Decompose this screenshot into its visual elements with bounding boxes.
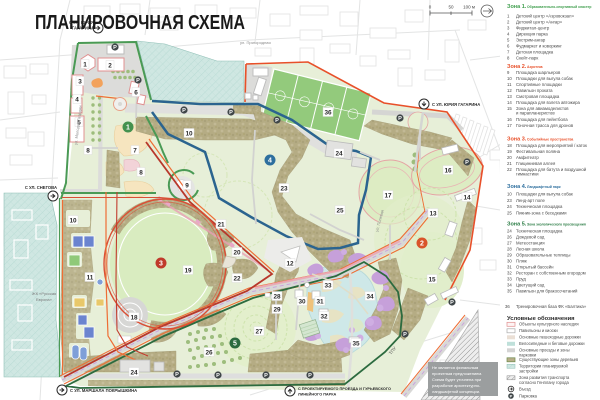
svg-text:Гоночная трасса для дронов: Гоночная трасса для дронов — [516, 123, 574, 128]
svg-text:20: 20 — [233, 249, 241, 256]
svg-text:P: P — [264, 373, 268, 379]
svg-text:P: P — [182, 108, 186, 114]
svg-text:Аэротека: Аэротека — [527, 65, 543, 69]
svg-text:2: 2 — [108, 62, 112, 69]
svg-text:4: 4 — [268, 158, 272, 165]
svg-text:17: 17 — [384, 192, 392, 199]
svg-text:26: 26 — [205, 349, 213, 356]
svg-text:5: 5 — [233, 341, 237, 348]
svg-text:Павильон проката: Павильон проката — [516, 88, 553, 93]
svg-text:16: 16 — [507, 117, 512, 122]
svg-text:29: 29 — [273, 306, 281, 313]
svg-text:P: P — [398, 116, 402, 122]
svg-text:Спортивные площадки: Спортивные площадки — [516, 82, 562, 87]
svg-text:P: P — [229, 110, 233, 116]
svg-text:19: 19 — [507, 149, 512, 154]
svg-text:25: 25 — [507, 210, 512, 215]
svg-text:P: P — [308, 373, 312, 379]
svg-text:17: 17 — [507, 123, 512, 128]
svg-text:ландшафтной концепции.: ландшафтной концепции. — [432, 389, 480, 394]
svg-text:19: 19 — [184, 267, 192, 274]
svg-text:Пикник-зона с беседками: Пикник-зона с беседками — [516, 210, 567, 215]
svg-text:Фиджитал-центр: Фиджитал-центр — [516, 26, 550, 31]
svg-text:15: 15 — [507, 106, 512, 111]
svg-text:Зона 1.: Зона 1. — [507, 4, 527, 10]
svg-text:3: 3 — [78, 78, 82, 85]
svg-text:34: 34 — [507, 283, 512, 288]
svg-text:36: 36 — [505, 304, 510, 309]
svg-text:Амфитеатр: Амфитеатр — [516, 155, 539, 160]
svg-text:Образовательно-спортивный клас: Образовательно-спортивный кластер — [527, 5, 591, 9]
svg-text:24: 24 — [507, 229, 512, 234]
svg-text:7: 7 — [133, 147, 137, 154]
svg-text:28: 28 — [507, 247, 512, 252]
svg-text:15: 15 — [428, 276, 436, 283]
svg-text:4: 4 — [75, 96, 79, 103]
svg-text:ЖК «Русская: ЖК «Русская — [32, 291, 56, 296]
svg-text:35: 35 — [352, 340, 360, 347]
svg-text:31: 31 — [507, 265, 512, 270]
svg-text:Площадка для мероприятий / кат: Площадка для мероприятий / каток — [516, 143, 587, 148]
svg-text:P: P — [465, 160, 469, 166]
svg-text:Детский центр «Ангар»: Детский центр «Ангар» — [516, 20, 563, 25]
svg-text:11: 11 — [87, 274, 94, 281]
svg-text:13: 13 — [507, 94, 512, 99]
svg-text:Событийные пространства: Событийные пространства — [527, 138, 573, 142]
svg-text:29: 29 — [507, 253, 512, 258]
svg-text:22: 22 — [233, 275, 241, 282]
svg-text:проектным предложением.: проектным предложением. — [432, 371, 482, 376]
svg-text:P: P — [113, 45, 117, 51]
svg-text:Павильоны и киоски: Павильоны и киоски — [519, 328, 558, 333]
svg-text:Площадки для выгула собак: Площадки для выгула собак — [516, 76, 573, 81]
svg-text:Тренировочная база ФК «Балтика: Тренировочная база ФК «Балтика» — [516, 304, 587, 309]
svg-text:Ленд-арт поле: Ленд-арт поле — [516, 198, 545, 203]
svg-text:14: 14 — [507, 100, 512, 105]
svg-text:24: 24 — [507, 204, 512, 209]
svg-text:Основные пешеходные дорожки: Основные пешеходные дорожки — [519, 335, 581, 340]
svg-text:Лесная школа: Лесная школа — [516, 247, 545, 252]
svg-text:Фудмаркет и коворкинг: Фудмаркет и коворкинг — [516, 44, 562, 49]
svg-text:10: 10 — [69, 217, 77, 224]
svg-text:Площадка для пейнтбола: Площадка для пейнтбола — [516, 117, 568, 122]
svg-text:Зона 4.: Зона 4. — [507, 184, 527, 190]
svg-text:P: P — [275, 118, 279, 124]
svg-text:Смотровая площадка: Смотровая площадка — [516, 94, 560, 99]
svg-text:21: 21 — [507, 161, 512, 166]
svg-text:14: 14 — [463, 194, 471, 201]
svg-text:10: 10 — [185, 130, 193, 137]
svg-text:20: 20 — [507, 155, 512, 160]
svg-text:Техническая площадка: Техническая площадка — [516, 204, 563, 209]
svg-text:10: 10 — [507, 76, 512, 81]
svg-text:Фестивальная поляна: Фестивальная поляна — [516, 149, 561, 154]
svg-text:23: 23 — [280, 185, 288, 192]
svg-text:Парковка: Парковка — [519, 394, 538, 399]
svg-text:16: 16 — [444, 167, 452, 174]
svg-text:27: 27 — [507, 241, 512, 246]
svg-text:Детский центр «Аэровокзал»: Детский центр «Аэровокзал» — [516, 14, 575, 19]
svg-text:С УЛ. СНЕГОВА: С УЛ. СНЕГОВА — [25, 185, 57, 190]
svg-text:Пляж: Пляж — [516, 259, 527, 264]
svg-text:35: 35 — [507, 289, 512, 294]
svg-text:22: 22 — [507, 167, 512, 172]
svg-text:36: 36 — [324, 109, 332, 116]
svg-text:9: 9 — [185, 182, 189, 189]
svg-text:Метеостанция: Метеостанция — [516, 241, 545, 246]
svg-text:50: 50 — [448, 5, 454, 10]
svg-text:ЛИНЕЙНОГО ПАРКА: ЛИНЕЙНОГО ПАРКА — [298, 393, 337, 397]
svg-text:Детская площадка: Детская площадка — [516, 50, 554, 55]
svg-text:P: P — [450, 300, 454, 306]
svg-text:ПЛАНИРОВОЧНАЯ СХЕМА: ПЛАНИРОВОЧНАЯ СХЕМА — [35, 12, 245, 34]
svg-text:P: P — [403, 332, 407, 338]
svg-text:31: 31 — [316, 298, 324, 305]
svg-text:Глициниевая аллея: Глициниевая аллея — [516, 161, 556, 166]
svg-text:ул. Пригородная: ул. Пригородная — [240, 40, 271, 45]
svg-text:Въезд: Въезд — [519, 387, 531, 392]
svg-text:34: 34 — [366, 293, 374, 300]
svg-text:26: 26 — [507, 235, 512, 240]
svg-text:Открытый бассейн: Открытый бассейн — [516, 265, 554, 270]
svg-text:18: 18 — [507, 143, 512, 148]
svg-text:P: P — [216, 373, 220, 379]
svg-text:P: P — [136, 78, 140, 84]
svg-text:Площадки для выгула собак: Площадки для выгула собак — [516, 192, 573, 197]
svg-text:Велосипедные и беговые дорожки: Велосипедные и беговые дорожки — [519, 341, 585, 346]
svg-text:Павильон для бракосочетаний: Павильон для бракосочетаний — [516, 289, 578, 294]
svg-text:8: 8 — [86, 147, 90, 154]
svg-text:С УЛ. ЮРИЯ ГАГАРИНА: С УЛ. ЮРИЯ ГАГАРИНА — [432, 102, 480, 107]
svg-text:Зона 3.: Зона 3. — [507, 137, 527, 143]
svg-text:Скейт-парк: Скейт-парк — [516, 56, 538, 61]
svg-text:8: 8 — [139, 169, 143, 176]
svg-text:разработке архитектурно-: разработке архитектурно- — [432, 383, 481, 388]
svg-text:С ПРОЕКТИРУЕМОГО ПРОЕЗДА И ГУР: С ПРОЕКТИРУЕМОГО ПРОЕЗДА И ГУРЬЕВСКОГО — [298, 387, 391, 391]
svg-text:Европа»: Европа» — [36, 297, 53, 302]
svg-text:27: 27 — [255, 328, 263, 335]
svg-text:P: P — [175, 372, 179, 378]
svg-text:33: 33 — [507, 277, 512, 282]
svg-text:Существующие зоны деревьев: Существующие зоны деревьев — [519, 357, 578, 362]
svg-text:Образовательные теплицы: Образовательные теплицы — [516, 253, 570, 258]
svg-text:Техническая площадка: Техническая площадка — [516, 229, 563, 234]
svg-text:6: 6 — [134, 89, 138, 96]
svg-text:33: 33 — [324, 282, 332, 289]
svg-text:С УЛ. МАРШАЛА ПОКРЫШКИНА: С УЛ. МАРШАЛА ПОКРЫШКИНА — [70, 388, 137, 393]
svg-text:100 м: 100 м — [463, 5, 475, 10]
svg-text:согласно Генплану города: согласно Генплану города — [519, 380, 569, 385]
svg-text:10: 10 — [507, 192, 512, 197]
svg-text:Экстрим-ангар: Экстрим-ангар — [516, 38, 546, 43]
svg-text:1: 1 — [83, 61, 87, 68]
svg-text:30: 30 — [298, 298, 306, 305]
svg-text:гимнастики: гимнастики — [516, 172, 539, 177]
svg-text:32: 32 — [507, 271, 512, 276]
svg-text:Пруд: Пруд — [516, 277, 526, 282]
svg-text:18: 18 — [130, 314, 138, 321]
svg-text:Зона 5.: Зона 5. — [507, 222, 527, 228]
svg-text:12: 12 — [507, 88, 512, 93]
svg-text:28: 28 — [273, 293, 281, 300]
svg-text:застройки: застройки — [519, 369, 538, 374]
svg-text:24: 24 — [335, 150, 343, 157]
svg-text:Площадка для взлета автожира: Площадка для взлета автожира — [516, 100, 580, 105]
svg-text:Ландшафтный парк: Ландшафтный парк — [527, 185, 561, 189]
svg-text:2: 2 — [420, 241, 424, 248]
svg-text:Цветущий сад: Цветущий сад — [516, 283, 545, 288]
svg-text:30: 30 — [507, 259, 512, 264]
svg-text:Зона экологического просвещени: Зона экологического просвещения — [527, 223, 586, 227]
svg-text:и парапланеристов: и парапланеристов — [516, 111, 555, 116]
svg-text:13: 13 — [429, 210, 437, 217]
svg-text:Объекты культурного наследия: Объекты культурного наследия — [519, 322, 579, 327]
svg-text:P: P — [510, 394, 513, 399]
svg-text:1: 1 — [126, 125, 130, 132]
svg-text:Площадка шарльеров: Площадка шарльеров — [516, 70, 561, 75]
svg-text:11: 11 — [507, 82, 512, 87]
svg-text:32: 32 — [320, 313, 328, 320]
svg-text:12: 12 — [286, 260, 294, 267]
svg-text:25: 25 — [336, 207, 344, 214]
svg-text:Дождевой сад: Дождевой сад — [516, 235, 545, 240]
svg-text:3: 3 — [159, 261, 163, 268]
svg-text:Ресторан с собственным огородо: Ресторан с собственным огородом — [516, 271, 586, 276]
svg-text:24: 24 — [130, 369, 138, 376]
svg-text:Дирекция парка: Дирекция парка — [516, 32, 548, 37]
svg-text:23: 23 — [507, 198, 512, 203]
svg-text:Схема будет уточнена при: Схема будет уточнена при — [432, 377, 481, 382]
svg-text:21: 21 — [217, 221, 225, 228]
svg-text:Не является финальным: Не является финальным — [432, 365, 479, 370]
